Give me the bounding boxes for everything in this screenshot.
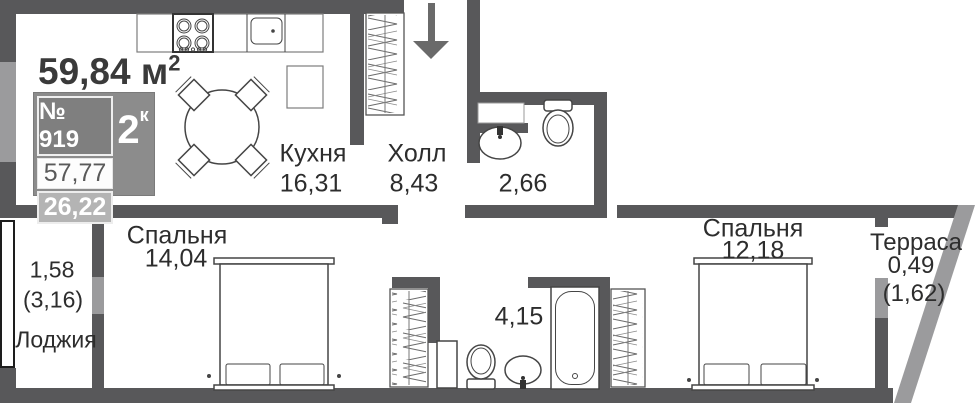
wall-segment [92, 218, 104, 277]
wardrobe-icon [390, 289, 428, 387]
room-area-terrace: 0,49 [888, 254, 935, 278]
unit-room-count: 2к [115, 96, 151, 192]
floor-plan: 59,84 м2 № 919 57,77 26,22 2к Кухня 16,3… [0, 0, 976, 403]
stove-icon [173, 14, 213, 52]
shaft-box [478, 103, 524, 123]
room-area-kitchen: 16,31 [280, 172, 343, 197]
kitchen-window [0, 62, 16, 162]
room-area-bedroom-2: 12,18 [722, 239, 785, 264]
wardrobe-icon [611, 289, 645, 387]
wall-segment [594, 105, 607, 218]
wall-segment [465, 205, 607, 218]
unit-info-badge: № 919 57,77 26,22 2к [33, 92, 155, 196]
bed-icon [687, 258, 819, 390]
toilet-icon [467, 345, 495, 389]
room-area-hall: 8,43 [390, 172, 439, 197]
unit-area-main: 57,77 [37, 158, 113, 189]
wall-segment [467, 0, 480, 163]
loggia-window [1, 221, 14, 367]
wall-segment [0, 14, 16, 62]
wall-segment [598, 277, 610, 388]
wall-segment [392, 277, 430, 288]
wall-segment [0, 368, 16, 388]
door-leaf [437, 341, 457, 388]
unit-info-left: № 919 57,77 26,22 [37, 96, 113, 192]
room-label-kitchen: Кухня [280, 142, 347, 167]
room-label-loggia: Лоджия [15, 329, 97, 352]
entry-arrow-icon [413, 3, 449, 59]
room-label-hall: Холл [388, 142, 447, 167]
wall-segment [0, 0, 404, 14]
bathtub-icon [551, 287, 599, 389]
toilet-icon [543, 100, 573, 146]
room-area-full-loggia: (3,16) [23, 289, 83, 312]
room-area-full-terrace: (1,62) [883, 282, 946, 306]
room-area-loggia: 1,58 [30, 259, 75, 282]
washbasin-icon [479, 126, 521, 159]
total-area-label: 59,84 м2 [38, 51, 181, 93]
loggia-door-window [92, 277, 104, 314]
wall-segment [875, 218, 888, 227]
room-area-bathroom-large: 4,15 [495, 305, 544, 330]
wall-segment [875, 318, 888, 388]
unit-area-secondary: 26,22 [37, 191, 113, 224]
wall-segment [382, 218, 398, 224]
room-area-bedroom-1: 14,04 [145, 247, 208, 272]
unit-number: № 919 [37, 96, 113, 156]
wall-segment [350, 14, 364, 145]
washbasin-icon [505, 356, 541, 389]
bed-icon [207, 258, 341, 390]
wall-segment [428, 277, 440, 343]
wardrobe-icon [366, 13, 404, 115]
room-area-bathroom-small: 2,66 [499, 172, 548, 197]
